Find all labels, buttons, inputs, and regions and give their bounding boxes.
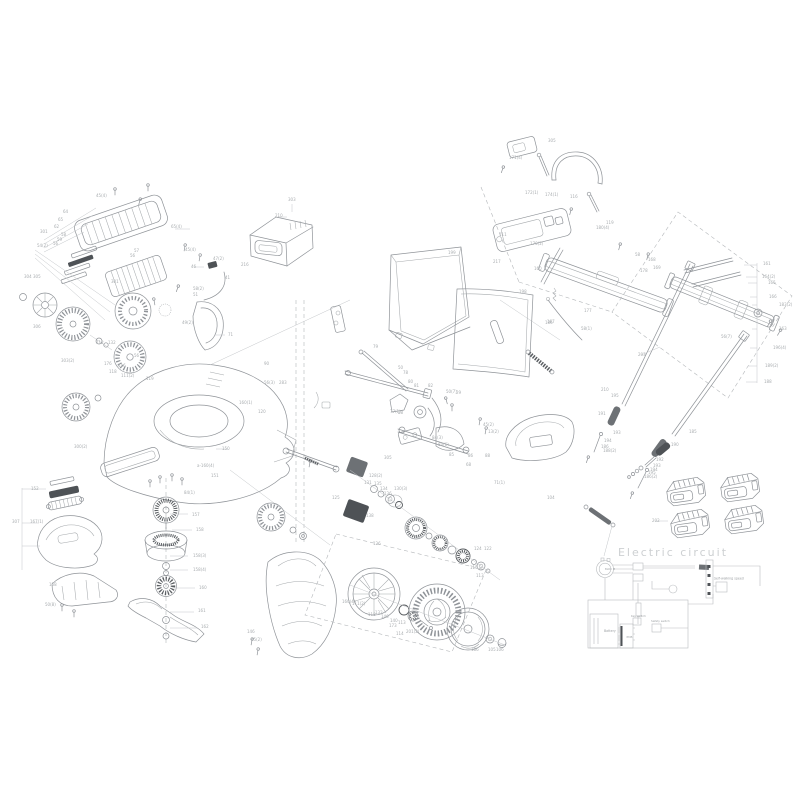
part-number-label: 305 <box>548 138 556 143</box>
part-number-label: 151 <box>211 473 219 478</box>
part-number-label: 132 <box>108 340 116 345</box>
part-number-label: 158(4) <box>193 567 207 572</box>
part-number-label: 88 <box>485 453 491 458</box>
part-number-label: 124 <box>474 546 482 551</box>
part-number-label: 82 <box>428 383 434 388</box>
part-number-label: 85 <box>449 452 455 457</box>
exploded-parts-diagram-page: Electric circuit 45(4)64656230158595654 <box>0 0 800 800</box>
part-number-label: 167 <box>547 319 555 324</box>
part-number-label: 79 <box>373 344 379 349</box>
part-number-label: 78 <box>403 370 409 375</box>
part-number-label: 162 <box>201 624 209 629</box>
rear-discharge-chute <box>250 552 337 658</box>
part-number-label: 105 <box>488 647 496 652</box>
part-number-label: 301 <box>111 279 119 284</box>
control-cable <box>584 505 615 556</box>
part-number-label: 120 <box>258 409 266 414</box>
part-number-label: 68 <box>466 462 472 467</box>
part-number-label: 192 <box>656 457 664 462</box>
grass-bag-cloth <box>453 289 533 377</box>
part-number-label: 165 <box>768 280 776 285</box>
circuit-component-label: Self-walking speed <box>714 577 744 581</box>
circuit-component-label: Key switch <box>631 614 646 618</box>
part-number-label: 216 <box>241 262 249 267</box>
part-number-label: a-160(4) <box>197 463 215 468</box>
part-number-label: 163 <box>779 326 787 331</box>
part-number-label: 183(2) <box>779 302 793 307</box>
part-number-label: 303 <box>288 197 296 202</box>
part-number-label: 301 <box>40 229 48 234</box>
part-number-label: 305 <box>33 274 41 279</box>
part-number-label: 178 <box>640 268 648 273</box>
part-number-label: 304 <box>24 274 32 279</box>
part-number-label: 210 <box>601 387 609 392</box>
part-number-label: 188(2) <box>603 448 617 453</box>
part-number-label: 169 <box>653 265 661 270</box>
part-number-label: 306 <box>33 324 41 329</box>
part-number-label: 113 <box>476 573 484 578</box>
lower-handle-tubes <box>585 261 757 499</box>
part-number-label: 307 <box>12 519 20 524</box>
part-number-label: 58(1) <box>581 326 592 331</box>
mulch-plug-assembly <box>22 477 118 617</box>
part-number-label: 196(4) <box>773 345 787 350</box>
part-number-label: 65(4) <box>171 224 182 229</box>
circuit-component-label: BLDC M <box>605 567 615 571</box>
part-number-label: 158 <box>49 582 57 587</box>
circuit-component-label: PCB <box>627 635 633 639</box>
motor-mount-plate <box>104 254 225 329</box>
part-number-label: 41 <box>225 275 231 280</box>
part-number-label: 130(3) <box>394 486 408 491</box>
part-number-label: 113 <box>398 620 406 625</box>
part-number-label: 160(1) <box>239 400 253 405</box>
part-number-label: 191 <box>598 411 606 416</box>
part-number-label: 202 <box>652 518 660 523</box>
part-number-label: 189(2) <box>765 363 779 368</box>
part-number-label: 157 <box>192 512 200 517</box>
part-number-label: 111 <box>499 232 507 237</box>
circuit-title: Electric circuit <box>618 546 728 559</box>
part-number-label: 28 <box>398 410 404 415</box>
part-number-label: 173 <box>389 623 397 628</box>
part-number-label: 84(6) <box>438 442 449 447</box>
part-number-label: 283 <box>279 380 287 385</box>
part-number-label: 203 <box>638 352 646 357</box>
part-number-label: 90 <box>264 361 270 366</box>
part-number-label: 136 <box>384 491 392 496</box>
part-number-label: 49(2) <box>182 320 193 325</box>
top-cover-plate-assembly <box>44 184 202 284</box>
part-number-label: 146 <box>381 614 389 619</box>
part-number-label: 131 <box>364 480 372 485</box>
side-cover-panel <box>193 302 223 350</box>
part-number-label: 201(2) <box>406 629 420 634</box>
part-number-label: 199 <box>448 250 456 255</box>
part-number-label: 111(2) <box>352 601 366 606</box>
bag-support-rod <box>359 350 408 391</box>
part-number-label: 65 <box>58 217 64 222</box>
part-number-label: 150 <box>222 446 230 451</box>
part-number-label: 185 <box>689 429 697 434</box>
part-number-label: 198 <box>519 289 527 294</box>
part-number-label: 146 <box>247 629 255 634</box>
part-number-label: 161 <box>763 261 771 266</box>
part-number-label: 84(3) <box>432 435 443 440</box>
part-number-label: 174(1) <box>545 192 559 197</box>
part-number-label: 45(4) <box>185 247 196 252</box>
part-number-label: 210 <box>275 213 283 218</box>
part-number-label: 161 <box>198 608 206 613</box>
rear-door <box>506 415 574 461</box>
part-number-label: 171(4) <box>509 155 523 160</box>
part-number-label: 126 <box>373 541 381 546</box>
part-number-label: 158 <box>196 527 204 532</box>
part-number-label: 116 <box>570 194 578 199</box>
part-number-label: 45(4) <box>96 193 107 198</box>
part-number-label: 106 <box>496 647 504 652</box>
part-number-label: 176 <box>104 361 112 366</box>
part-number-label: 104 <box>547 495 555 500</box>
part-number-label: 164(2) <box>762 274 776 279</box>
part-number-label: 119 <box>146 376 154 381</box>
part-number-label: 170(2) <box>530 241 544 246</box>
part-number-label: 158(3) <box>193 553 207 558</box>
part-number-label: 80 <box>408 379 414 384</box>
circuit-component-label: Battery <box>604 629 616 633</box>
grass-bag-frame <box>389 247 470 350</box>
part-number-label: 64 <box>63 209 69 214</box>
part-number-label: 138 <box>366 513 374 518</box>
part-number-label: 86 <box>468 453 474 458</box>
part-number-label: 188 <box>764 379 772 384</box>
handle-crossbar-lower <box>664 258 782 336</box>
part-number-label: 81 <box>414 383 420 388</box>
part-number-label: 111(2) <box>121 373 135 378</box>
part-number-label: 193 <box>613 430 621 435</box>
part-number-label: 303(2) <box>61 358 75 363</box>
part-number-label: 29 <box>456 390 462 395</box>
front-wheel-group <box>20 293 147 421</box>
part-number-label: 112 <box>96 340 104 345</box>
part-number-label: 54(2) <box>37 243 48 248</box>
bag-spring <box>526 350 554 374</box>
part-number-label: 305 <box>384 455 392 460</box>
part-number-label: 58 <box>635 252 641 257</box>
part-number-label: 51 <box>193 292 199 297</box>
part-number-label: 180(4) <box>596 225 610 230</box>
part-number-label: 56 <box>130 253 136 258</box>
part-number-label: 125 <box>332 495 340 500</box>
part-number-label: 172(1) <box>525 190 539 195</box>
part-number-label: 13(2) <box>488 429 499 434</box>
part-number-label: 116 <box>118 363 126 368</box>
part-number-label: 167(1) <box>30 519 44 524</box>
part-number-label: 62 <box>54 224 60 229</box>
part-number-label: 190 <box>671 442 679 447</box>
part-number-label: 186(2) <box>644 474 658 479</box>
drive-gear-train <box>343 456 500 580</box>
part-number-label: 160 <box>534 266 542 271</box>
part-number-label: 300(2) <box>74 444 88 449</box>
part-number-label: 118 <box>109 369 117 374</box>
handle-switch-assembly <box>492 136 650 340</box>
part-number-label: 194 <box>604 438 612 443</box>
part-number-label: 152 <box>31 486 39 491</box>
part-number-label: 71 <box>228 332 234 337</box>
part-number-label: 56(7) <box>721 334 732 339</box>
part-number-label: 168 <box>648 257 656 262</box>
part-number-label: 45(2) <box>251 637 262 642</box>
part-number-label: 114 <box>396 631 404 636</box>
part-number-label: 71(1) <box>494 480 505 485</box>
part-number-label: 115 <box>470 565 478 570</box>
part-number-label: 56 <box>134 353 140 358</box>
part-number-label: 160 <box>199 585 207 590</box>
part-number-label: 45(2) <box>483 422 494 427</box>
mower-deck <box>35 250 296 504</box>
battery-pack-grid <box>655 472 764 538</box>
part-number-label: 128(2) <box>369 473 383 478</box>
circuit-component-label: Safety switch <box>651 619 670 623</box>
parts-diagram-canvas: Electric circuit 45(4)64656230158595654 <box>0 0 800 800</box>
part-number-label: 58(2) <box>193 286 204 291</box>
part-number-label: 47(2) <box>213 256 224 261</box>
part-number-label: 177 <box>584 308 592 313</box>
part-number-label: 84(1) <box>184 490 195 495</box>
part-number-label: 56 <box>53 241 59 246</box>
part-number-label: 195 <box>611 393 619 398</box>
rear-wheels <box>348 568 506 650</box>
part-number-label: 56(3) <box>264 380 275 385</box>
part-number-label: 122 <box>484 546 492 551</box>
part-number-label: 217 <box>493 259 501 264</box>
part-number-label: 186 <box>471 647 479 652</box>
part-number-label: 166 <box>769 294 777 299</box>
part-number-label: 50(8) <box>45 602 56 607</box>
part-number-label: 46 <box>191 264 197 269</box>
